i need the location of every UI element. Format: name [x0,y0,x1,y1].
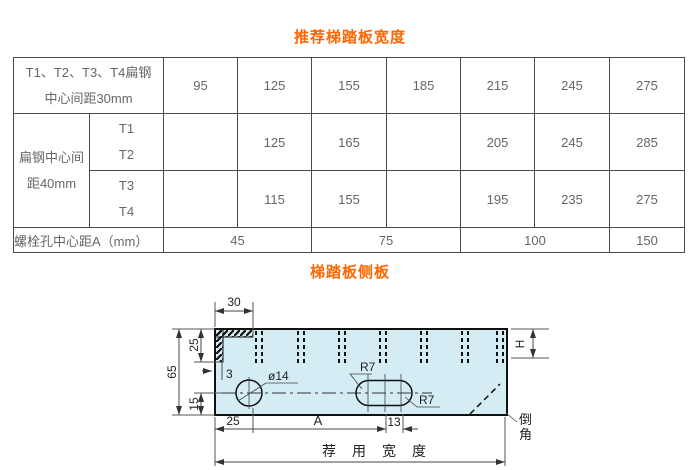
table-cell: 215 [461,58,535,114]
table-cell [387,171,461,228]
table-cell: 155 [312,58,387,114]
row-subheader-line: T4 [90,199,163,225]
dim-a-label: A [314,413,323,428]
table-row-t1t2: 扁钢中心间 距40mm T1 T2 125 165 205 245 285 [14,114,685,171]
dim-edge-to-hole-label: 25 [226,414,240,428]
tread-width-table: T1、T2、T3、T4扁钢 中心间距30mm 95 125 155 185 21… [13,57,685,253]
row-subheader-line: T2 [90,142,163,168]
table-row-bolt-spacing: 螺栓孔中心距A（mm） 45 75 100 150 [14,228,685,253]
table-cell: 245 [535,114,610,171]
row-subheader-line: T1 [90,116,163,142]
table-row-t3t4: T3 T4 115 155 195 235 275 [14,171,685,228]
row-header-bolt: 螺栓孔中心距A（mm） [14,228,164,253]
row-subheader-t3t4: T3 T4 [90,171,164,228]
table-cell: 115 [238,171,312,228]
table-row-30mm: T1、T2、T3、T4扁钢 中心间距30mm 95 125 155 185 21… [14,58,685,114]
chamfer-label-char2: 角 [519,427,532,442]
table-cell: 125 [238,58,312,114]
row-header-40mm: 扁钢中心间 距40mm [14,114,90,228]
table-title: 推荐梯踏板宽度 [0,26,700,47]
table-cell: 125 [238,114,312,171]
slot-radius-label-top: R7 [360,360,376,374]
svg-text:25: 25 [187,338,201,352]
table-cell: 75 [312,228,461,253]
table-cell: 195 [461,171,535,228]
row-header-line: 中心间距30mm [14,86,163,112]
table-cell: 275 [610,58,685,114]
table-cell: 45 [164,228,312,253]
table-cell: 275 [610,171,685,228]
dim-slot-centers-label: 13 [387,415,401,429]
row-subheader-t1t2: T1 T2 [90,114,164,171]
row-subheader-line: T3 [90,173,163,199]
slot-radius-label-bottom: R7 [419,393,435,407]
row-header-30mm: T1、T2、T3、T4扁钢 中心间距30mm [14,58,164,114]
table-cell: 235 [535,171,610,228]
svg-text:30: 30 [227,295,241,309]
table-cell: 285 [610,114,685,171]
row-header-line: 扁钢中心间 [14,145,89,171]
table-cell: 100 [461,228,610,253]
svg-text:65: 65 [165,365,179,379]
side-plate-drawing: ø14 R7 R7 倒 角 30 25 65 15 [0,285,700,470]
table-cell: 150 [610,228,685,253]
row-header-line: T1、T2、T3、T4扁钢 [14,60,163,86]
chamfer-leader [506,413,517,422]
table-cell: 245 [535,58,610,114]
svg-text:H: H [513,340,527,349]
table-cell: 205 [461,114,535,171]
table-cell: 165 [312,114,387,171]
table-cell [164,114,238,171]
hole-diameter-label: ø14 [268,369,289,383]
svg-text:15: 15 [187,397,201,411]
dim-overall-width: 荐用宽度 [215,443,505,462]
table-cell: 155 [312,171,387,228]
chamfer-label-char1: 倒 [519,412,532,427]
drawing-title: 梯踏板侧板 [0,261,700,282]
dim-right-height: H [511,329,549,358]
row-header-line: 距40mm [14,171,89,197]
table-cell [164,171,238,228]
recommended-width-label: 荐用宽度 [322,443,442,459]
table-cell [387,114,461,171]
svg-text:3: 3 [226,367,233,381]
table-cell: 185 [387,58,461,114]
table-cell: 95 [164,58,238,114]
